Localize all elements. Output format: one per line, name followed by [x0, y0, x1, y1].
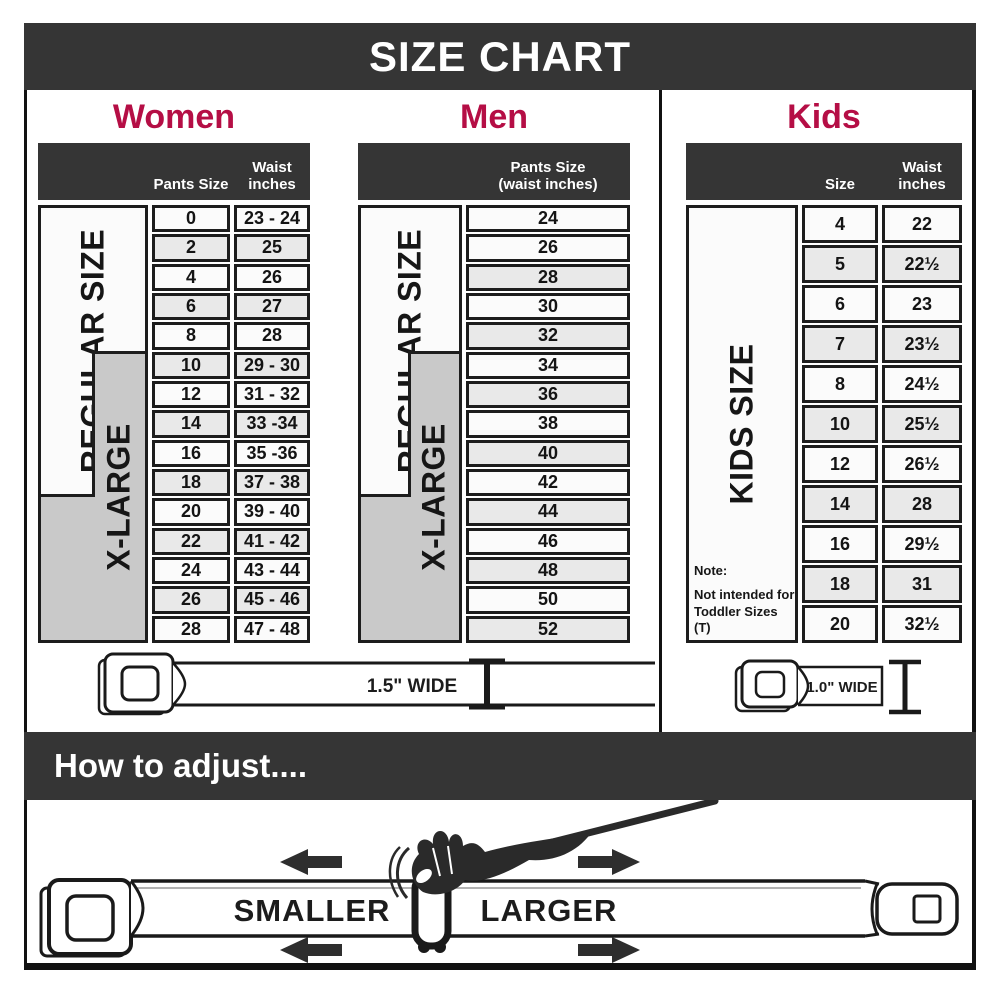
adult-belt-illustration: 1.5" WIDE — [95, 652, 655, 720]
pants-size-cell: 18 — [152, 469, 230, 496]
pants-size-cell: 28 — [152, 616, 230, 643]
size-cell: 7 — [802, 325, 878, 363]
size-cell: 5 — [802, 245, 878, 283]
pants-size-cell: 14 — [152, 410, 230, 437]
table-row: 36 — [466, 381, 630, 408]
pants-size-cell: 10 — [152, 352, 230, 379]
table-row: 20 32½ — [802, 605, 962, 643]
men-xlarge-label: X-LARGE — [415, 423, 452, 571]
waist-cell: 27 — [234, 293, 310, 320]
size-cell: 8 — [802, 365, 878, 403]
table-row: 16 29½ — [802, 525, 962, 563]
women-xlarge-box: X-LARGE — [92, 351, 148, 643]
waist-cell: 28 — [234, 322, 310, 349]
pants-size-cell: 44 — [466, 498, 630, 525]
table-row: 6 27 — [152, 293, 310, 320]
table-row: 6 23 — [802, 285, 962, 323]
belt-buckle-icon — [736, 661, 798, 711]
pants-size-cell: 46 — [466, 528, 630, 555]
table-row: 24 — [466, 205, 630, 232]
section-heading-kids: Kids — [686, 98, 962, 138]
pants-size-cell: 28 — [466, 264, 630, 291]
table-row: 38 — [466, 410, 630, 437]
size-cell: 16 — [802, 525, 878, 563]
women-xlarge-label: X-LARGE — [100, 423, 137, 571]
waist-cell: 23½ — [882, 325, 962, 363]
size-cell: 18 — [802, 565, 878, 603]
table-row: 26 45 - 46 — [152, 586, 310, 613]
waist-cell: 31 - 32 — [234, 381, 310, 408]
pants-size-cell: 40 — [466, 440, 630, 467]
table-row: 16 35 -36 — [152, 440, 310, 467]
table-row: 48 — [466, 557, 630, 584]
waist-cell: 43 - 44 — [234, 557, 310, 584]
belt-tip-icon — [865, 881, 957, 936]
waist-cell: 35 -36 — [234, 440, 310, 467]
table-row: 2 25 — [152, 234, 310, 261]
men-kids-divider — [659, 90, 662, 732]
men-table: REGULAR SIZE X-LARGE 24 26 28 — [358, 205, 630, 643]
table-row: 34 — [466, 352, 630, 379]
page-title: SIZE CHART — [24, 23, 976, 90]
women-header-waist: Waist inches — [234, 160, 310, 194]
men-header-pants-size: Pants Size (waist inches) — [466, 160, 630, 194]
kids-size-category-labels: KIDS SIZE Note: Not intended for Toddler… — [686, 205, 798, 643]
waist-cell: 29½ — [882, 525, 962, 563]
table-row: 7 23½ — [802, 325, 962, 363]
table-row: 4 22 — [802, 205, 962, 243]
table-row: 42 — [466, 469, 630, 496]
table-row: 18 31 — [802, 565, 962, 603]
adjust-section-heading: How to adjust.... — [24, 732, 976, 800]
kids-belt-illustration: 1.0" WIDE — [730, 658, 945, 716]
size-cell: 14 — [802, 485, 878, 523]
pants-size-cell: 42 — [466, 469, 630, 496]
kids-note: Note: Not intended for Toddler Sizes (T) — [694, 563, 795, 636]
kids-header-waist: Waist inches — [882, 160, 962, 194]
table-row: 5 22½ — [802, 245, 962, 283]
waist-cell: 47 - 48 — [234, 616, 310, 643]
belt-buckle-icon — [99, 654, 173, 714]
pants-size-cell: 4 — [152, 264, 230, 291]
table-row: 20 39 - 40 — [152, 498, 310, 525]
kids-table: KIDS SIZE Note: Not intended for Toddler… — [686, 205, 962, 643]
table-row: 14 33 -34 — [152, 410, 310, 437]
women-size-category-labels: REGULAR SIZE X-LARGE — [38, 205, 148, 643]
pants-size-cell: 6 — [152, 293, 230, 320]
waist-cell: 29 - 30 — [234, 352, 310, 379]
size-cell: 12 — [802, 445, 878, 483]
waist-cell: 22 — [882, 205, 962, 243]
women-header-pants-size: Pants Size — [152, 177, 230, 194]
waist-cell: 32½ — [882, 605, 962, 643]
table-row: 50 — [466, 586, 630, 613]
pants-size-cell: 2 — [152, 234, 230, 261]
waist-cell: 26 — [234, 264, 310, 291]
table-row: 52 — [466, 616, 630, 643]
kids-size-box: KIDS SIZE Note: Not intended for Toddler… — [686, 205, 798, 643]
table-row: 32 — [466, 322, 630, 349]
table-row: 10 25½ — [802, 405, 962, 443]
kids-size-label: KIDS SIZE — [724, 344, 761, 505]
waist-cell: 45 - 46 — [234, 586, 310, 613]
waist-cell: 31 — [882, 565, 962, 603]
size-cell: 20 — [802, 605, 878, 643]
table-row: 30 — [466, 293, 630, 320]
men-xlarge-box-border — [408, 351, 411, 497]
table-row: 22 41 - 42 — [152, 528, 310, 555]
pants-size-cell: 24 — [466, 205, 630, 232]
pants-size-cell: 22 — [152, 528, 230, 555]
size-cell: 10 — [802, 405, 878, 443]
adjust-belt-illustration: SMALLER LARGER — [27, 800, 972, 963]
size-cell: 6 — [802, 285, 878, 323]
waist-cell: 37 - 38 — [234, 469, 310, 496]
pants-size-cell: 38 — [466, 410, 630, 437]
waist-cell: 41 - 42 — [234, 528, 310, 555]
pants-size-cell: 16 — [152, 440, 230, 467]
table-row: 44 — [466, 498, 630, 525]
table-row: 12 26½ — [802, 445, 962, 483]
section-heading-men: Men — [358, 98, 630, 138]
pants-size-cell: 50 — [466, 586, 630, 613]
table-row: 40 — [466, 440, 630, 467]
kids-belt-width-label: 1.0" WIDE — [806, 679, 877, 696]
pants-size-cell: 52 — [466, 616, 630, 643]
arrow-left-bottom-icon — [280, 937, 342, 963]
kids-table-rows: 4 22 5 22½ 6 23 7 23½ — [802, 205, 962, 643]
adjust-illustration-panel: SMALLER LARGER — [24, 800, 976, 970]
arrow-right-top-icon — [578, 849, 640, 875]
size-cell: 4 — [802, 205, 878, 243]
size-chart-infographic: SIZE CHART Women Men Kids Pants Size Wai… — [0, 0, 1000, 1000]
women-table: REGULAR SIZE X-LARGE 0 23 - 24 2 25 — [38, 205, 310, 643]
waist-cell: 25 — [234, 234, 310, 261]
table-row: 4 26 — [152, 264, 310, 291]
pants-size-cell: 0 — [152, 205, 230, 232]
table-row: 8 24½ — [802, 365, 962, 403]
waist-cell: 39 - 40 — [234, 498, 310, 525]
table-row: 10 29 - 30 — [152, 352, 310, 379]
table-row: 14 28 — [802, 485, 962, 523]
table-row: 24 43 - 44 — [152, 557, 310, 584]
pants-size-cell: 30 — [466, 293, 630, 320]
waist-cell: 22½ — [882, 245, 962, 283]
pants-size-cell: 8 — [152, 322, 230, 349]
pants-size-cell: 12 — [152, 381, 230, 408]
waist-cell: 26½ — [882, 445, 962, 483]
women-xlarge-box-border — [92, 351, 95, 497]
pants-size-cell: 20 — [152, 498, 230, 525]
table-row: 18 37 - 38 — [152, 469, 310, 496]
smaller-label: SMALLER — [234, 893, 391, 928]
women-table-rows: 0 23 - 24 2 25 4 26 6 27 — [152, 205, 310, 643]
table-row: 8 28 — [152, 322, 310, 349]
waist-cell: 23 — [882, 285, 962, 323]
women-table-header: Pants Size Waist inches — [38, 143, 310, 200]
pants-size-cell: 26 — [466, 234, 630, 261]
arrow-left-top-icon — [280, 849, 342, 875]
table-row: 28 — [466, 264, 630, 291]
pants-size-cell: 34 — [466, 352, 630, 379]
larger-label: LARGER — [481, 893, 618, 928]
adult-belt-width-label: 1.5" WIDE — [367, 676, 457, 697]
men-xlarge-box: X-LARGE — [408, 351, 462, 643]
pants-size-cell: 32 — [466, 322, 630, 349]
men-size-category-labels: REGULAR SIZE X-LARGE — [358, 205, 462, 643]
table-row: 26 — [466, 234, 630, 261]
waist-cell: 23 - 24 — [234, 205, 310, 232]
belt-buckle-icon — [41, 880, 131, 956]
pants-size-cell: 48 — [466, 557, 630, 584]
table-row: 28 47 - 48 — [152, 616, 310, 643]
table-row: 12 31 - 32 — [152, 381, 310, 408]
men-table-rows: 24 26 28 30 32 34 — [466, 205, 630, 643]
arrow-right-bottom-icon — [578, 937, 640, 963]
pants-size-cell: 36 — [466, 381, 630, 408]
table-row: 46 — [466, 528, 630, 555]
men-table-header: Pants Size (waist inches) — [358, 143, 630, 200]
waist-cell: 28 — [882, 485, 962, 523]
waist-cell: 24½ — [882, 365, 962, 403]
kids-table-header: Size Waist inches — [686, 143, 962, 200]
pants-size-cell: 24 — [152, 557, 230, 584]
table-row: 0 23 - 24 — [152, 205, 310, 232]
kids-header-size: Size — [802, 177, 878, 194]
waist-cell: 33 -34 — [234, 410, 310, 437]
width-measure-icon — [889, 662, 921, 712]
waist-cell: 25½ — [882, 405, 962, 443]
pants-size-cell: 26 — [152, 586, 230, 613]
section-heading-women: Women — [38, 98, 310, 138]
